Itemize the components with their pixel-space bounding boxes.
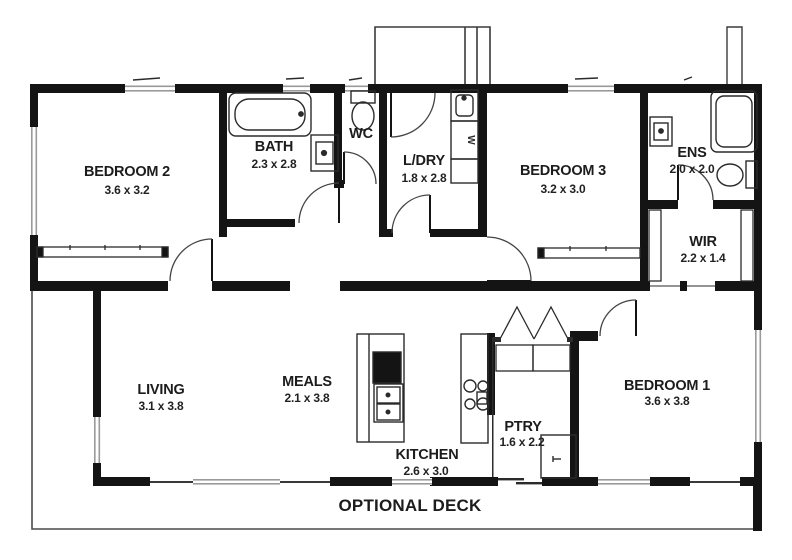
washing-machine-icon: W (451, 121, 478, 159)
pantry-double-doors (500, 307, 568, 339)
bedroom2-robe (37, 245, 168, 257)
living-dims: 3.1 x 3.8 (139, 399, 184, 413)
ensuite-vanity-icon (650, 117, 672, 146)
kitchen-island-icon (357, 334, 404, 442)
bedroom2-door (170, 239, 212, 281)
laundry-trough-icon (451, 90, 478, 121)
optional-deck-label: OPTIONAL DECK (338, 496, 481, 516)
front-porch (375, 27, 490, 88)
entry-door (391, 93, 435, 137)
kitchen-label: KITCHEN (395, 447, 458, 463)
laundry-door (392, 195, 430, 233)
bedroom2-label: BEDROOM 2 (84, 164, 170, 180)
laundry-dims: 1.8 x 2.8 (402, 171, 447, 185)
bedroom3-door (487, 237, 531, 281)
wir-label: WIR (689, 234, 717, 250)
bedroom1-label: BEDROOM 1 (624, 378, 710, 394)
side-structure (727, 27, 742, 88)
bath-dims: 2.3 x 2.8 (252, 157, 297, 171)
shower-icon (711, 91, 757, 152)
bath-label: BATH (255, 139, 293, 155)
ensuite-toilet-icon (717, 161, 757, 188)
kitchen-dims: 2.6 x 3.0 (404, 464, 449, 478)
deck-side-wall (753, 486, 762, 531)
floor-plan: W (0, 0, 792, 560)
bedroom2-dims: 3.6 x 3.2 (105, 183, 150, 197)
floor-plan-drawing: W (0, 0, 792, 560)
pantry-label: PTRY (504, 419, 541, 435)
svg-text:W: W (465, 135, 476, 145)
bedroom3-label: BEDROOM 3 (520, 163, 606, 179)
laundry-label: L/DRY (403, 153, 445, 169)
pantry-dims: 1.6 x 2.2 (500, 435, 545, 449)
laundry-cabinet-icon (451, 159, 478, 183)
meals-dims: 2.1 x 3.8 (285, 391, 330, 405)
cooktop-icon (461, 334, 489, 443)
wir-opening (650, 281, 715, 291)
bedroom3-dims: 3.2 x 3.0 (541, 182, 586, 196)
bedroom1-dims: 3.6 x 3.8 (645, 394, 690, 408)
sliding-door (498, 477, 542, 486)
wc-toilet-icon (351, 91, 375, 130)
wc-door (344, 152, 376, 184)
ensuite-label: ENS (677, 145, 706, 161)
bath-door (299, 183, 339, 223)
bedroom1-door (600, 300, 636, 336)
bedroom3-robe (538, 246, 640, 258)
living-label: LIVING (137, 382, 184, 398)
wir-dims: 2.2 x 1.4 (681, 251, 726, 265)
wc-label: WC (349, 126, 373, 142)
bathtub-icon (229, 93, 311, 136)
pantry-shelves (496, 345, 570, 371)
bath-vanity-icon (311, 135, 338, 171)
meals-label: MEALS (282, 374, 332, 390)
ensuite-dims: 2.0 x 2.0 (670, 162, 715, 176)
